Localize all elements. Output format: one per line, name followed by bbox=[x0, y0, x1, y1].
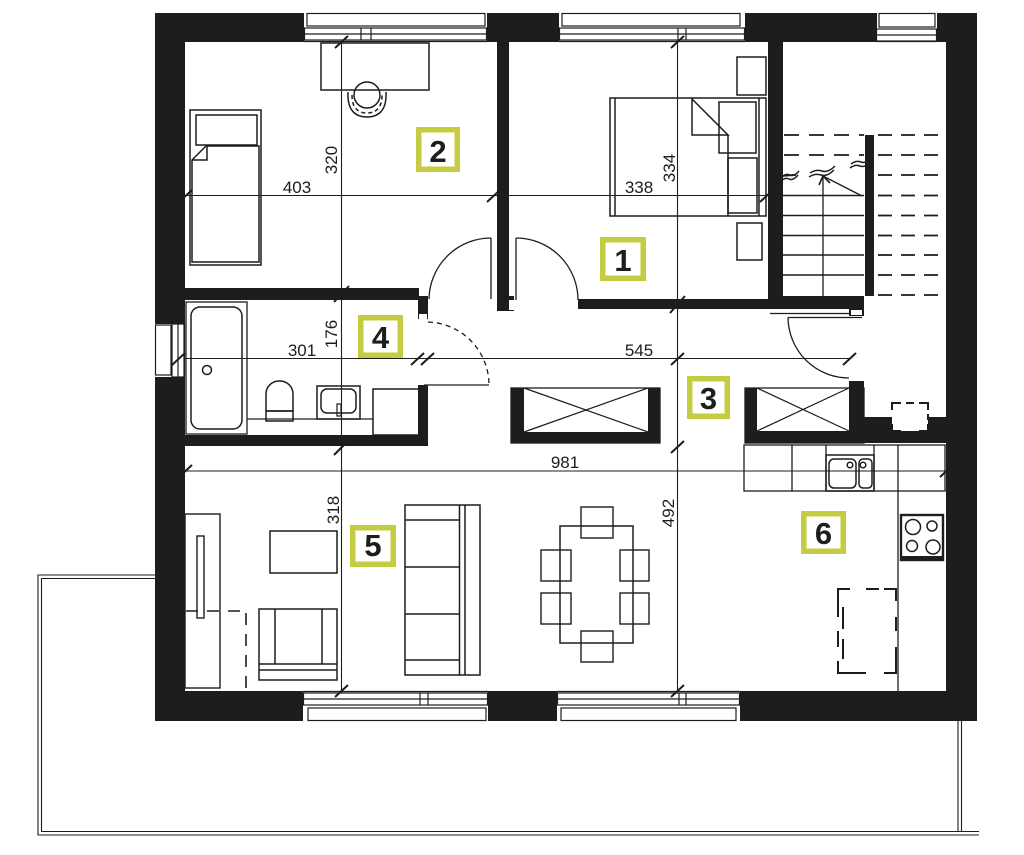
svg-text:2: 2 bbox=[429, 134, 446, 169]
svg-text:318: 318 bbox=[324, 496, 343, 524]
svg-text:3: 3 bbox=[700, 381, 717, 416]
svg-text:492: 492 bbox=[659, 499, 678, 527]
svg-text:5: 5 bbox=[364, 528, 381, 563]
svg-text:6: 6 bbox=[815, 516, 832, 551]
svg-text:545: 545 bbox=[625, 341, 653, 360]
svg-text:334: 334 bbox=[660, 154, 679, 182]
svg-text:301: 301 bbox=[288, 341, 316, 360]
svg-text:320: 320 bbox=[322, 146, 341, 174]
svg-text:981: 981 bbox=[551, 453, 579, 472]
svg-text:1: 1 bbox=[614, 243, 631, 278]
svg-text:4: 4 bbox=[372, 320, 390, 355]
svg-text:403: 403 bbox=[283, 178, 311, 197]
svg-text:338: 338 bbox=[625, 178, 653, 197]
svg-text:176: 176 bbox=[322, 320, 341, 348]
